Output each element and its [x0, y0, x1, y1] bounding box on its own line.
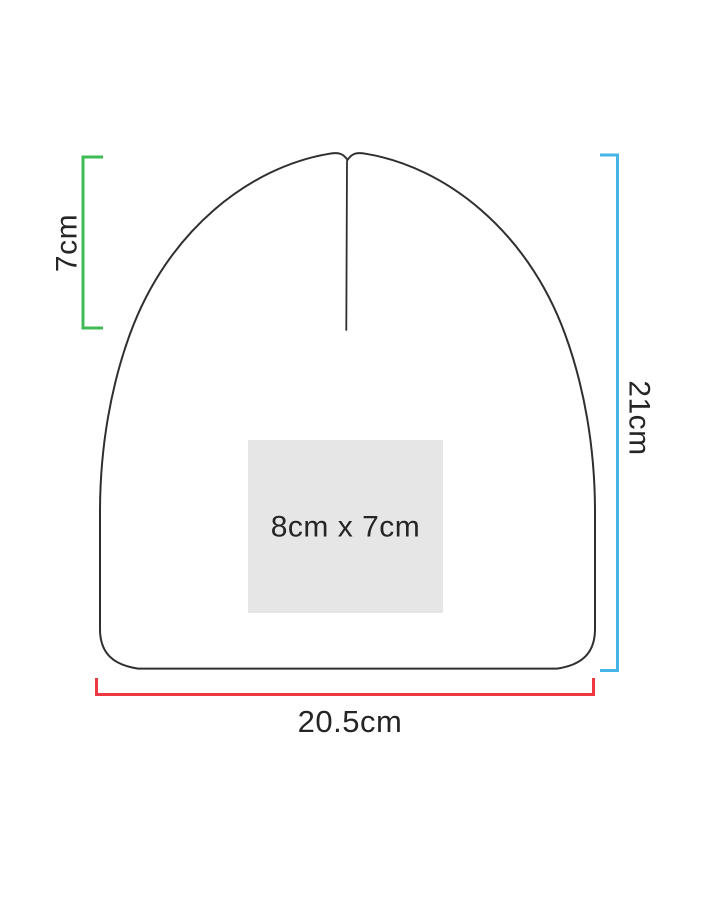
width-bracket — [97, 678, 594, 695]
crown-height-bracket — [83, 157, 103, 328]
crown-seam-line — [346, 161, 347, 330]
total-height-label: 21cm — [623, 380, 656, 455]
total-height-bracket — [600, 155, 618, 671]
beanie-spec-svg: 8cm x 7cm 7cm 21cm 20.5cm — [0, 0, 706, 900]
width-label: 20.5cm — [298, 704, 403, 739]
print-area-label: 8cm x 7cm — [271, 511, 421, 544]
beanie-spec-diagram: 8cm x 7cm 7cm 21cm 20.5cm — [0, 0, 706, 900]
crown-height-label: 7cm — [51, 214, 84, 272]
